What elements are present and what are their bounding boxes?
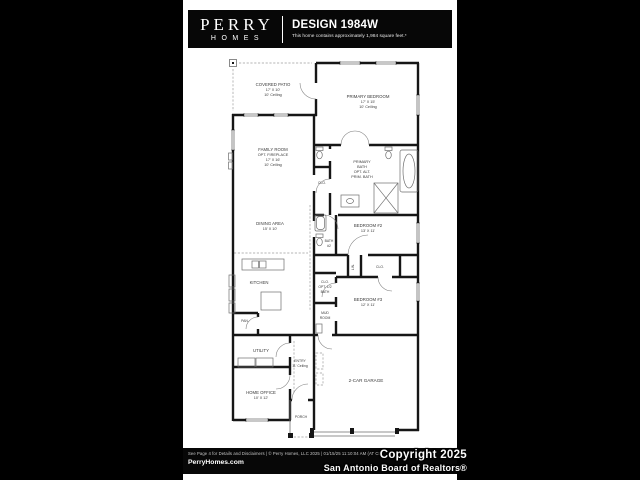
- washer: [238, 358, 255, 367]
- header-bar: PERRY HOMES DESIGN 1984W This home conta…: [188, 10, 452, 48]
- label-primary-bedroom: PRIMARY BEDROOM: [347, 94, 390, 99]
- window-glyphs: [231, 61, 420, 436]
- vanity: [341, 195, 359, 207]
- toilet-2: [385, 147, 392, 151]
- label-family-room-ceiling: 10' Ceiling: [264, 163, 282, 167]
- floor-plan-svg: COVERED PATIO 17' X 10' 10' Ceiling PRIM…: [228, 55, 443, 445]
- label-home-office: HOME OFFICE: [246, 390, 276, 395]
- label-bedroom2-dims: 13' X 11': [361, 229, 376, 233]
- room-labels: COVERED PATIO 17' X 10' 10' Ceiling PRIM…: [241, 82, 390, 419]
- label-bedroom3: BEDROOM #3: [354, 297, 383, 302]
- design-title: DESIGN 1984W: [292, 19, 407, 31]
- label-family-room-opt: OPT. FIREPLACE: [258, 153, 289, 157]
- label-primary-bath-2: BATH: [357, 165, 367, 169]
- label-dining-area: DINING AREA: [256, 221, 284, 226]
- label-garage: 2-CAR GARAGE: [349, 378, 384, 383]
- label-mud-1: MUD: [321, 311, 329, 315]
- brochure-page: PERRY HOMES DESIGN 1984W This home conta…: [183, 0, 457, 480]
- label-pantry: PAN.: [241, 319, 249, 323]
- label-entry-ceiling: 11' Ceiling: [292, 364, 308, 368]
- label-covered-patio-dims: 17' X 10': [266, 88, 281, 92]
- label-clo-opt-2: OPT. 1/2: [318, 285, 331, 289]
- label-kitchen: KITCHEN: [250, 280, 269, 285]
- dashed-guides: [233, 63, 323, 437]
- label-covered-patio-ceiling: 10' Ceiling: [264, 93, 282, 97]
- header-divider: [282, 16, 283, 43]
- kitchen-island-counter: [242, 259, 284, 270]
- kitchen-sink: [252, 261, 259, 268]
- label-primary-bedroom-dims: 17' X 15': [361, 100, 376, 104]
- label-bedroom3-dims: 12' X 11': [361, 303, 376, 307]
- label-home-office-dims: 10' X 12': [254, 396, 269, 400]
- design-subtitle: This home contains approximately 1,984 s…: [292, 34, 407, 39]
- label-bedroom2: BEDROOM #2: [354, 223, 383, 228]
- label-entry: ENTRY: [294, 359, 306, 363]
- label-covered-patio: COVERED PATIO: [256, 82, 291, 87]
- dryer: [256, 358, 273, 367]
- copyright-watermark: Copyright 2025 San Antonio Board of Real…: [324, 449, 467, 474]
- label-utility: UTILITY: [253, 348, 269, 353]
- plan-walls: [232, 63, 419, 431]
- label-bath2-1: BATH: [325, 239, 334, 243]
- screenshot-stage: PERRY HOMES DESIGN 1984W This home conta…: [0, 0, 640, 480]
- watermark-line2: San Antonio Board of Realtors®: [324, 462, 467, 475]
- perry-homes-logo: PERRY HOMES: [188, 17, 282, 42]
- label-primary-bath-4: PRIM. BATH: [351, 175, 373, 179]
- label-primary-bath-3: OPT. ALT.: [354, 170, 371, 174]
- label-closet2: CLO.: [376, 265, 384, 269]
- logo-word-perry: PERRY: [196, 17, 274, 33]
- kitchen-island: [261, 292, 281, 310]
- label-dining-area-dims: 15' X 10': [263, 227, 278, 231]
- watermark-line1: Copyright 2025: [324, 449, 467, 462]
- label-porch: PORCH: [295, 415, 308, 419]
- toilet-1: [316, 147, 323, 151]
- toilet-3: [316, 234, 323, 238]
- header-title-block: DESIGN 1984W This home contains approxim…: [292, 19, 407, 39]
- label-family-room: FAMILY ROOM: [258, 147, 288, 152]
- label-clo-opt-1: CLO.: [321, 280, 329, 284]
- label-family-room-dims: 17' X 16': [266, 158, 281, 162]
- mud-bench: [316, 324, 322, 333]
- label-bath2-2: #2: [327, 244, 331, 248]
- label-linen: LIN.: [351, 264, 355, 270]
- label-mud-2: ROOM: [320, 316, 331, 320]
- label-primary-closet: CLO.: [318, 181, 326, 185]
- label-clo-opt-3: BATH: [321, 290, 330, 294]
- logo-word-homes: HOMES: [206, 35, 264, 42]
- label-primary-bedroom-ceiling: 10' Ceiling: [359, 105, 377, 109]
- label-primary-bath-1: PRIMARY: [353, 160, 371, 164]
